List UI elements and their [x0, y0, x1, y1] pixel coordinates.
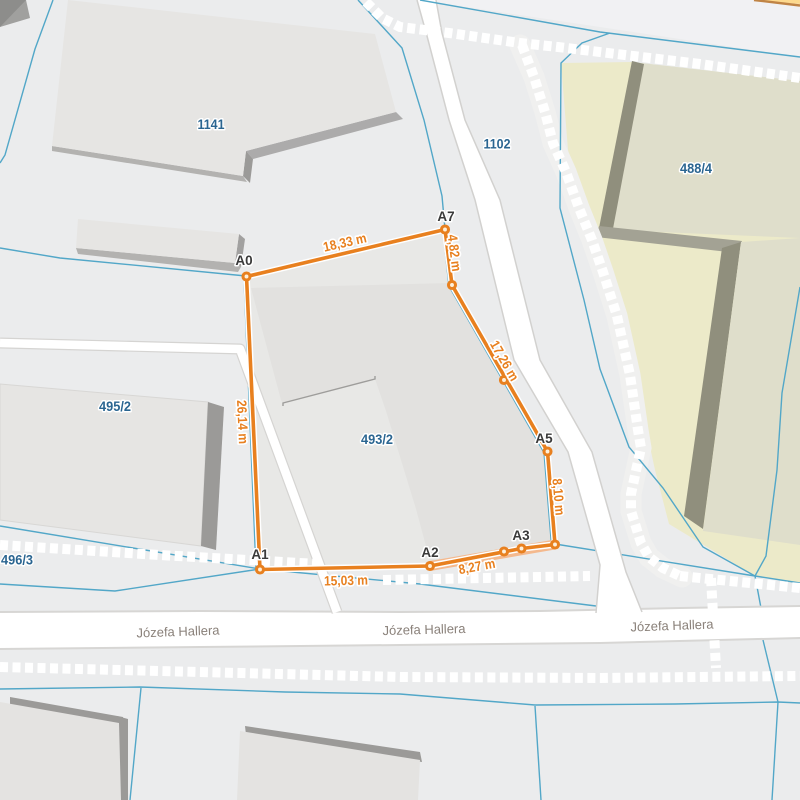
svg-text:A7: A7: [437, 209, 454, 224]
svg-text:A0: A0: [235, 253, 252, 268]
svg-text:496/3: 496/3: [1, 552, 33, 568]
svg-text:Józefa Hallera: Józefa Hallera: [136, 623, 220, 641]
svg-text:Józefa Hallera: Józefa Hallera: [382, 621, 466, 638]
svg-text:15,03 m: 15,03 m: [324, 573, 368, 589]
svg-text:8,10 m: 8,10 m: [549, 478, 567, 516]
svg-text:A2: A2: [421, 545, 438, 560]
svg-text:1102: 1102: [484, 136, 511, 152]
svg-text:26,14 m: 26,14 m: [234, 400, 251, 445]
svg-text:493/2: 493/2: [361, 431, 393, 447]
svg-text:A5: A5: [535, 431, 553, 446]
svg-text:Józefa Hallera: Józefa Hallera: [630, 617, 714, 635]
svg-text:488/4: 488/4: [680, 160, 712, 176]
svg-text:1141: 1141: [198, 116, 225, 132]
svg-text:A1: A1: [251, 547, 269, 562]
svg-text:A3: A3: [512, 528, 530, 543]
svg-text:495/2: 495/2: [99, 398, 131, 414]
